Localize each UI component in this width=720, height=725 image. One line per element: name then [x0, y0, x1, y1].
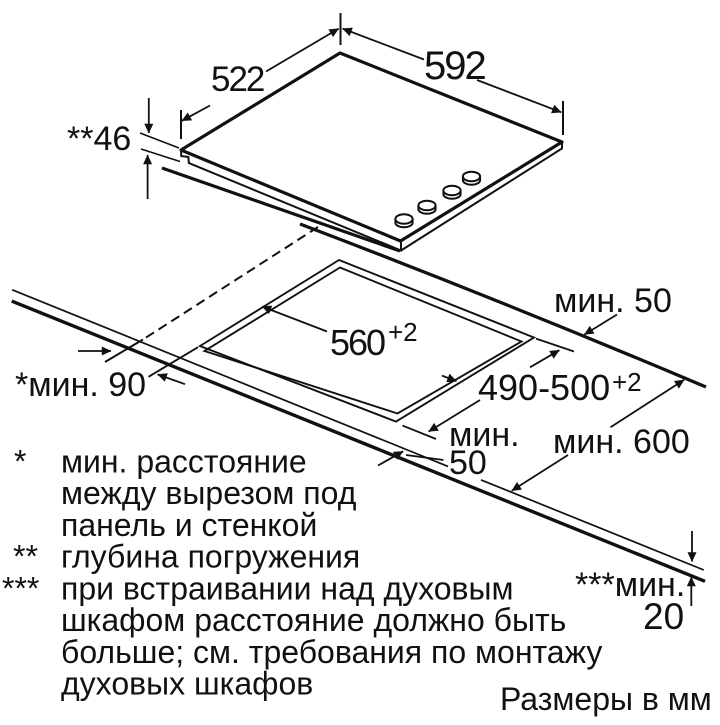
- svg-text:522: 522: [211, 60, 264, 99]
- svg-text:592: 592: [424, 44, 485, 88]
- svg-text:490-500: 490-500: [478, 367, 610, 408]
- svg-text:духовых шкафов: духовых шкафов: [61, 666, 313, 702]
- svg-text:Размеры в мм: Размеры в мм: [500, 681, 712, 717]
- svg-text:**46: **46: [67, 120, 131, 158]
- svg-text:между вырезом под: между вырезом под: [61, 475, 357, 511]
- svg-text:*мин. 90: *мин. 90: [15, 366, 146, 404]
- svg-text:мин. 600: мин. 600: [553, 423, 690, 461]
- svg-text:мин. 50: мин. 50: [554, 282, 672, 320]
- svg-text:шкафом расстояние должно быть: шкафом расстояние должно быть: [61, 602, 566, 638]
- svg-text:20: 20: [643, 596, 684, 637]
- svg-text:50: 50: [449, 444, 487, 482]
- svg-text:***: ***: [2, 571, 39, 607]
- svg-text:глубина погружения: глубина погружения: [61, 539, 360, 575]
- svg-text:560: 560: [330, 322, 385, 363]
- svg-text:+2: +2: [388, 317, 418, 347]
- svg-text:+2: +2: [612, 367, 642, 397]
- svg-text:*: *: [14, 444, 26, 480]
- svg-text:**: **: [13, 539, 38, 575]
